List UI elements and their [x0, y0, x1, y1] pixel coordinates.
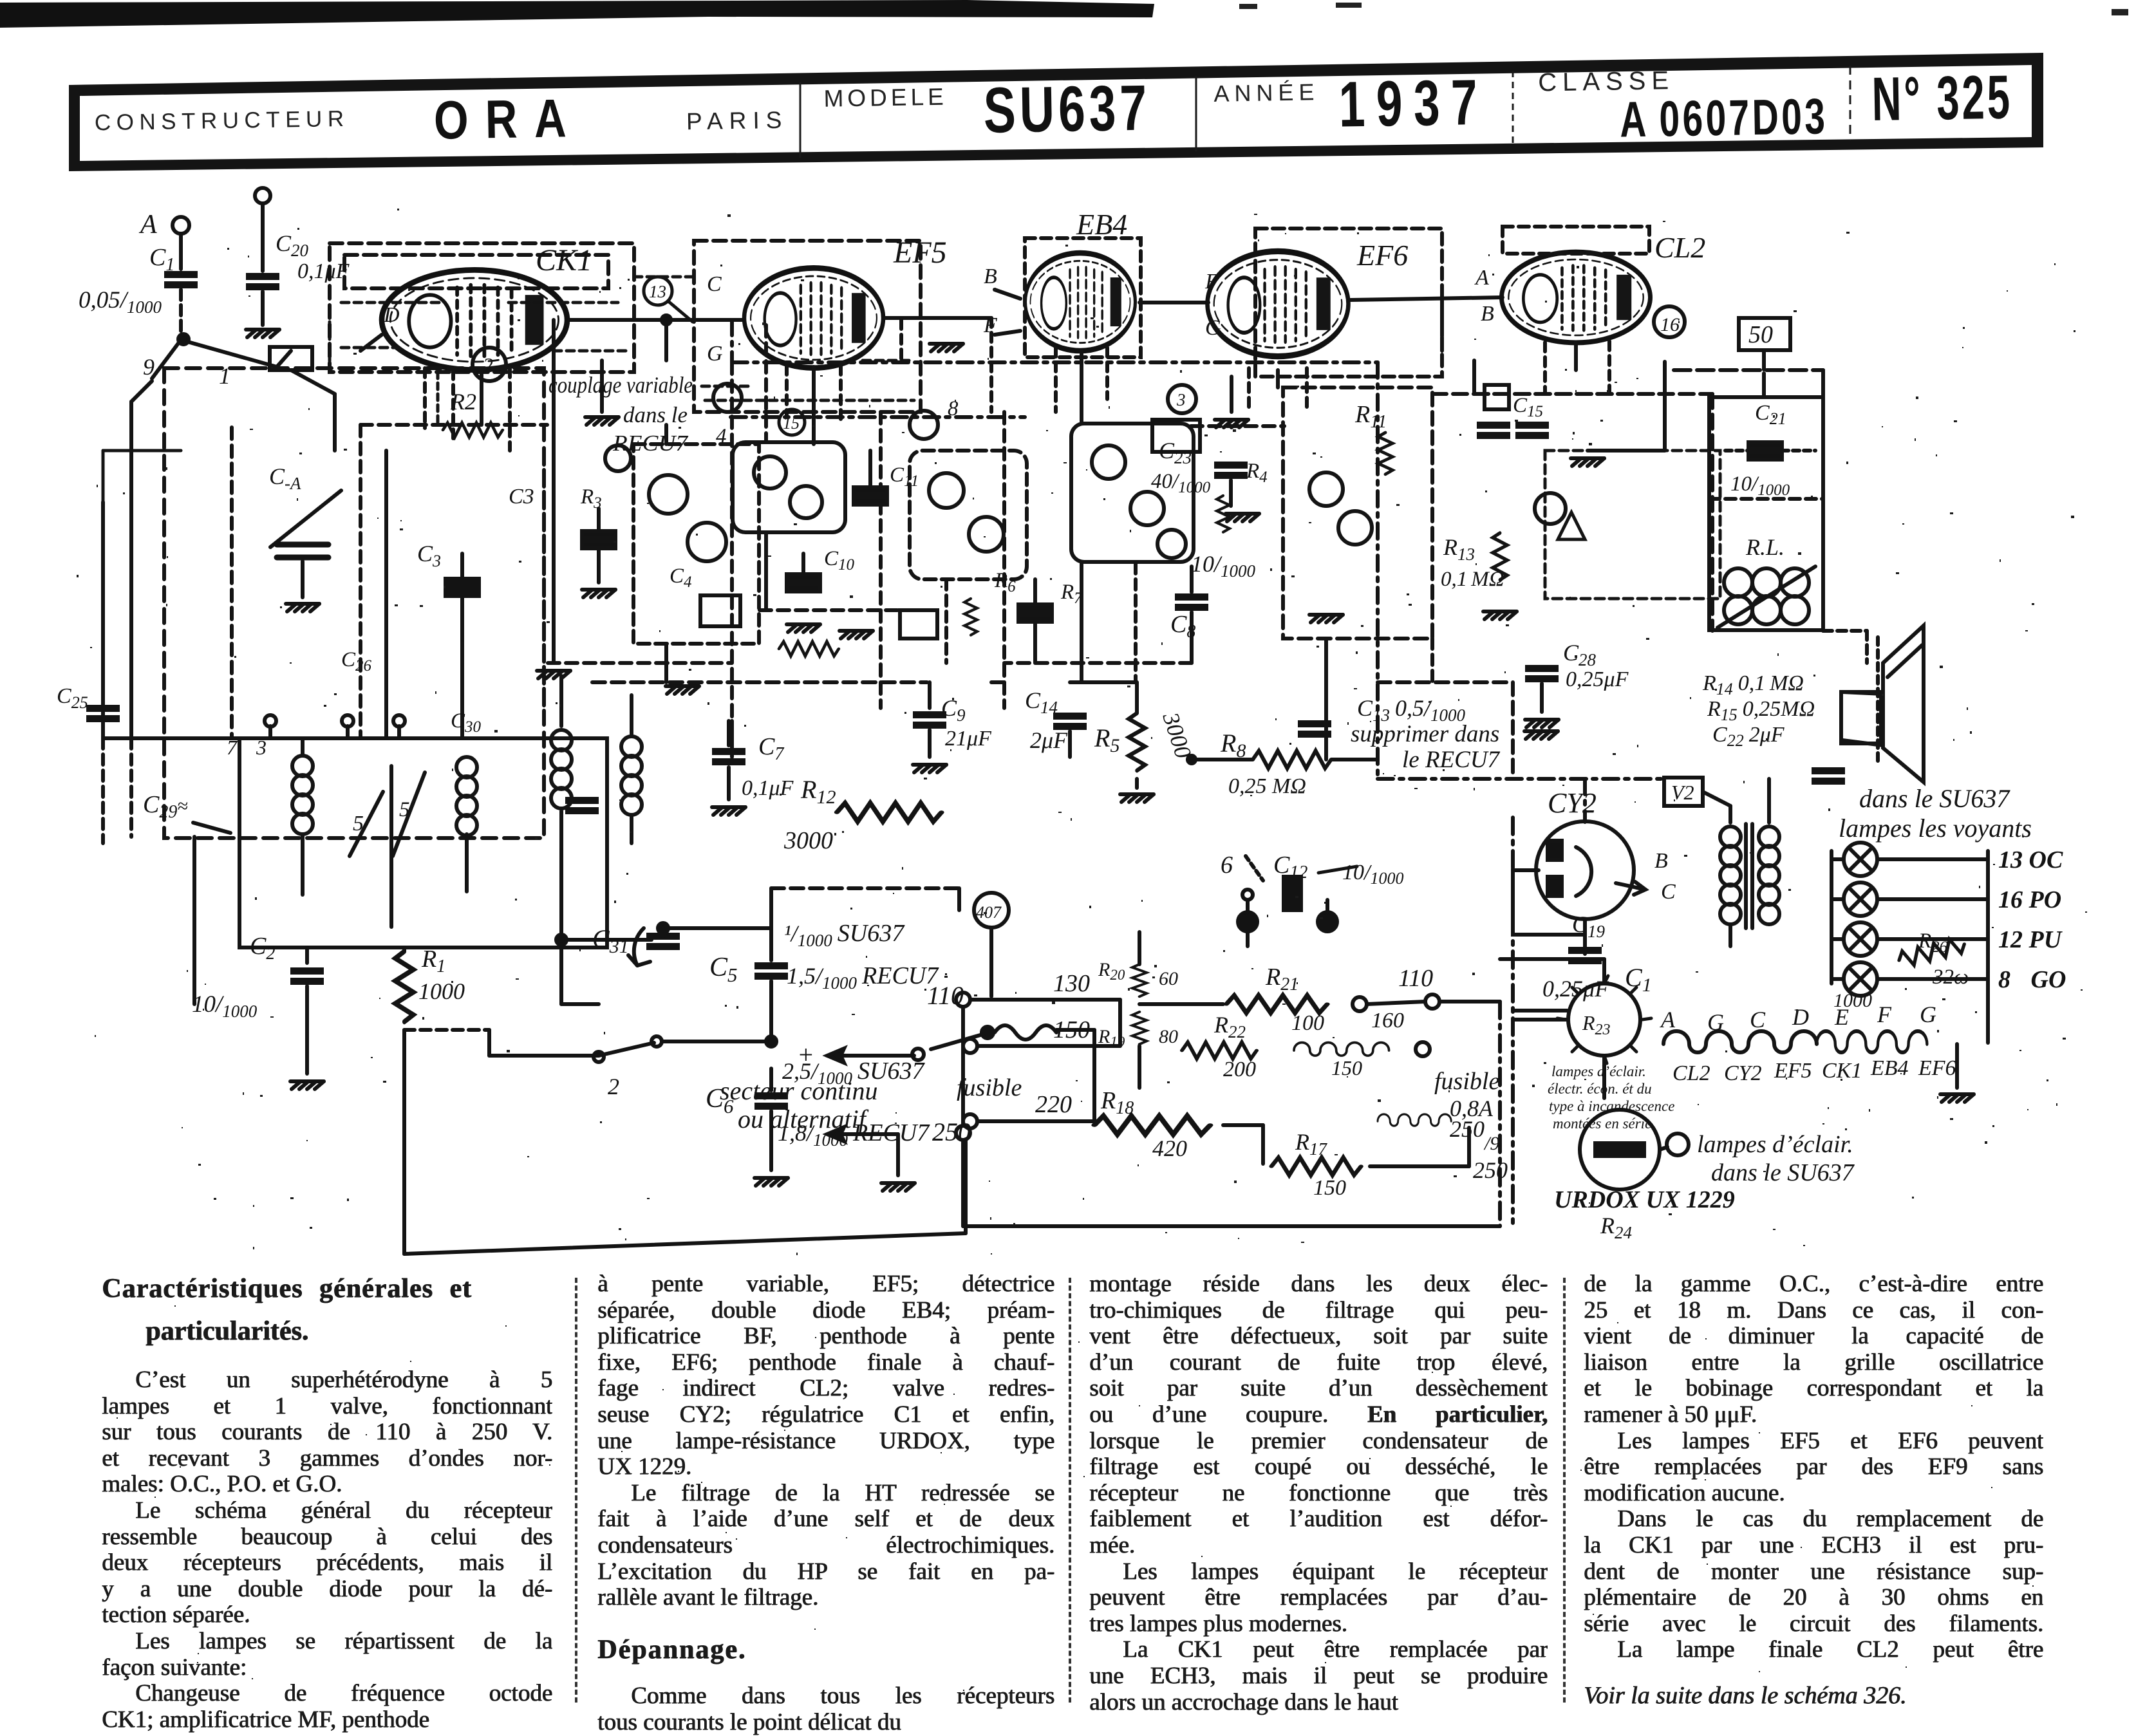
svg-text:F: F — [1877, 1002, 1892, 1027]
svg-text:C30: C30 — [451, 709, 482, 736]
svg-text:R7: R7 — [1060, 581, 1083, 607]
svg-text:G: G — [1707, 1009, 1724, 1035]
svg-text:¹/1000SU637: ¹/1000SU637 — [784, 920, 905, 950]
svg-text:160: 160 — [1371, 1009, 1404, 1032]
svg-text:C10: C10 — [824, 547, 855, 574]
svg-text:12 PU: 12 PU — [1998, 926, 2063, 953]
svg-text:G: G — [1920, 1002, 1936, 1027]
svg-text:R4: R4 — [1246, 460, 1268, 486]
svg-text:250: 250 — [1450, 1116, 1485, 1142]
svg-text:C: C — [1750, 1007, 1766, 1032]
svg-text:R21: R21 — [1265, 964, 1298, 994]
svg-text:R18: R18 — [1100, 1087, 1134, 1118]
svg-text:1000: 1000 — [418, 978, 465, 1004]
svg-text:0,25 MΩ: 0,25 MΩ — [1228, 774, 1306, 798]
svg-text:10/1000: 10/1000 — [1342, 861, 1403, 888]
svg-text:ou alternatif: ou alternatif — [738, 1105, 869, 1134]
svg-text:B: B — [1654, 849, 1668, 873]
svg-text:13 OC: 13 OC — [1998, 846, 2063, 873]
svg-text:8 GO: 8 GO — [1998, 966, 2066, 993]
svg-text:C3: C3 — [509, 485, 534, 509]
svg-text:C1: C1 — [149, 244, 174, 275]
svg-text:A: A — [1660, 1007, 1676, 1032]
svg-text:R20: R20 — [1098, 959, 1125, 983]
svg-text:CY2: CY2 — [1548, 787, 1597, 819]
svg-text:3: 3 — [256, 736, 267, 759]
svg-text:C222μF: C222μF — [1712, 723, 1785, 750]
svg-text:EF5: EF5 — [893, 236, 947, 270]
svg-text:R12: R12 — [800, 775, 836, 808]
svg-text:B: B — [984, 265, 997, 288]
svg-text:R11: R11 — [1354, 401, 1387, 432]
svg-text:13: 13 — [649, 282, 666, 301]
svg-text:4: 4 — [716, 425, 727, 448]
svg-text:0,25μF: 0,25μF — [1566, 667, 1629, 691]
svg-text:32ω: 32ω — [1932, 966, 1969, 989]
svg-text:dans le: dans le — [623, 402, 688, 427]
svg-text:C23: C23 — [1159, 438, 1192, 467]
svg-text:2: 2 — [608, 1074, 619, 1099]
svg-text:C31: C31 — [592, 924, 629, 957]
svg-text:5: 5 — [353, 812, 364, 835]
svg-text:C5: C5 — [709, 953, 738, 986]
svg-text:16 PO: 16 PO — [1998, 886, 2061, 913]
svg-text:le RECU7: le RECU7 — [1402, 747, 1501, 773]
svg-text:EF5: EF5 — [1774, 1059, 1812, 1083]
svg-text:2: 2 — [483, 353, 493, 377]
svg-text:40/1000: 40/1000 — [1151, 470, 1211, 496]
svg-text:C4: C4 — [670, 565, 692, 591]
svg-text:C25: C25 — [57, 684, 88, 712]
svg-text:3000: 3000 — [1157, 709, 1197, 761]
svg-text:80: 80 — [1159, 1026, 1178, 1047]
svg-text:6: 6 — [1221, 852, 1233, 879]
svg-text:C11: C11 — [890, 463, 919, 490]
svg-text:électr. écon. ét du: électr. écon. ét du — [1548, 1081, 1652, 1097]
svg-text:130: 130 — [1053, 970, 1090, 997]
svg-text:R13: R13 — [1443, 534, 1475, 564]
svg-text:16: 16 — [1660, 314, 1680, 335]
svg-text:R3: R3 — [580, 485, 602, 512]
svg-text:G: G — [707, 342, 723, 366]
svg-text:fusible: fusible — [1434, 1068, 1499, 1095]
svg-text:407: 407 — [976, 903, 1002, 922]
svg-text:CK1: CK1 — [536, 243, 592, 277]
svg-text:R17: R17 — [1295, 1129, 1328, 1159]
svg-text:lampes d’éclair.: lampes d’éclair. — [1551, 1063, 1646, 1079]
svg-text:EB4: EB4 — [1076, 208, 1127, 241]
svg-text:8: 8 — [948, 397, 959, 420]
svg-text:secteur continu: secteur continu — [720, 1076, 878, 1105]
svg-text:B: B — [1481, 302, 1494, 326]
svg-text:200: 200 — [1223, 1058, 1256, 1081]
svg-text:lampes les voyants: lampes les voyants — [1839, 814, 2032, 843]
svg-text:D: D — [1792, 1004, 1809, 1030]
svg-text:dans le SU637: dans le SU637 — [1711, 1159, 1855, 1186]
svg-text:150: 150 — [1313, 1176, 1346, 1200]
svg-text:150: 150 — [1053, 1016, 1090, 1043]
svg-text:A: A — [138, 210, 157, 239]
svg-text:150: 150 — [1331, 1056, 1362, 1079]
svg-text:A: A — [1474, 266, 1489, 290]
svg-text:3: 3 — [1176, 390, 1186, 409]
svg-text:R5: R5 — [1094, 723, 1120, 756]
svg-text:C21: C21 — [1755, 401, 1786, 428]
svg-text:0,1μF: 0,1μF — [742, 776, 794, 800]
svg-text:supprimer dans: supprimer dans — [1351, 721, 1499, 747]
svg-text:C: C — [707, 272, 722, 296]
svg-text:C15: C15 — [1513, 394, 1543, 420]
svg-text:G: G — [1205, 316, 1221, 340]
svg-text:F: F — [1204, 270, 1219, 294]
svg-text:R23: R23 — [1582, 1011, 1611, 1038]
svg-text:100: 100 — [1291, 1011, 1324, 1035]
svg-text:R140,1 MΩ: R140,1 MΩ — [1702, 671, 1804, 698]
svg-text:C20: C20 — [276, 230, 309, 260]
svg-text:1,5/1000RECU7: 1,5/1000RECU7 — [787, 962, 939, 993]
svg-text:R8: R8 — [1220, 729, 1246, 761]
svg-text:URDOX UX 1229: URDOX UX 1229 — [1554, 1186, 1735, 1213]
svg-text:C-A: C-A — [269, 463, 301, 493]
svg-text:couplage variable: couplage variable — [548, 372, 693, 398]
svg-text:lampes d’éclair.: lampes d’éclair. — [1697, 1131, 1853, 1158]
svg-text:9: 9 — [143, 354, 155, 380]
svg-text:EF6: EF6 — [1356, 239, 1408, 272]
svg-text:10/1000: 10/1000 — [1191, 551, 1256, 581]
svg-text:R22: R22 — [1213, 1012, 1246, 1041]
svg-text:250: 250 — [1473, 1157, 1508, 1183]
svg-text:E: E — [1834, 1004, 1849, 1030]
svg-text:EB4: EB4 — [1870, 1056, 1909, 1080]
svg-text:0,1MΩ: 0,1MΩ — [1441, 568, 1504, 591]
svg-text:0,05/1000: 0,05/1000 — [79, 287, 162, 317]
svg-text:5: 5 — [399, 798, 410, 821]
svg-text:10/1000: 10/1000 — [1730, 472, 1790, 499]
svg-text:CL2: CL2 — [1672, 1061, 1710, 1085]
svg-text:R26: R26 — [1918, 929, 1948, 956]
svg-text:220: 220 — [1035, 1091, 1072, 1118]
svg-text:R24: R24 — [1600, 1213, 1632, 1242]
svg-text:C28: C28 — [1563, 640, 1597, 669]
svg-text:2μF: 2μF — [1030, 727, 1068, 753]
svg-text:fusible: fusible — [957, 1074, 1022, 1101]
svg-text:D: D — [383, 303, 400, 327]
svg-text:C2: C2 — [250, 933, 275, 964]
svg-text:CY2: CY2 — [1724, 1061, 1762, 1085]
svg-text:R1: R1 — [421, 946, 445, 976]
svg-text:EF6: EF6 — [1918, 1056, 1956, 1080]
svg-text:420: 420 — [1152, 1135, 1187, 1161]
svg-text:50: 50 — [1748, 321, 1773, 348]
svg-text:C: C — [1661, 880, 1676, 904]
svg-text:60: 60 — [1159, 968, 1178, 989]
svg-text:R.L.: R.L. — [1745, 534, 1785, 560]
svg-text:0,1μF: 0,1μF — [297, 259, 350, 283]
svg-text:C26: C26 — [341, 648, 372, 675]
svg-text:21μF: 21μF — [945, 727, 992, 751]
svg-text:C14: C14 — [1025, 687, 1058, 717]
svg-text:3000: 3000 — [783, 827, 833, 854]
svg-text:R150,25MΩ: R150,25MΩ — [1707, 697, 1815, 724]
svg-text:C3: C3 — [417, 541, 441, 570]
svg-text:/9: /9 — [1483, 1133, 1499, 1154]
svg-text:CL2: CL2 — [1654, 231, 1705, 264]
svg-text:montées en série: montées en série — [1553, 1115, 1651, 1132]
svg-text:10/1000: 10/1000 — [192, 991, 258, 1021]
svg-text:R6: R6 — [994, 569, 1016, 595]
svg-text:110: 110 — [1398, 965, 1433, 992]
svg-text:dans le SU637: dans le SU637 — [1859, 784, 2010, 813]
svg-text:C7: C7 — [758, 733, 784, 764]
svg-text:+: + — [797, 1040, 814, 1069]
